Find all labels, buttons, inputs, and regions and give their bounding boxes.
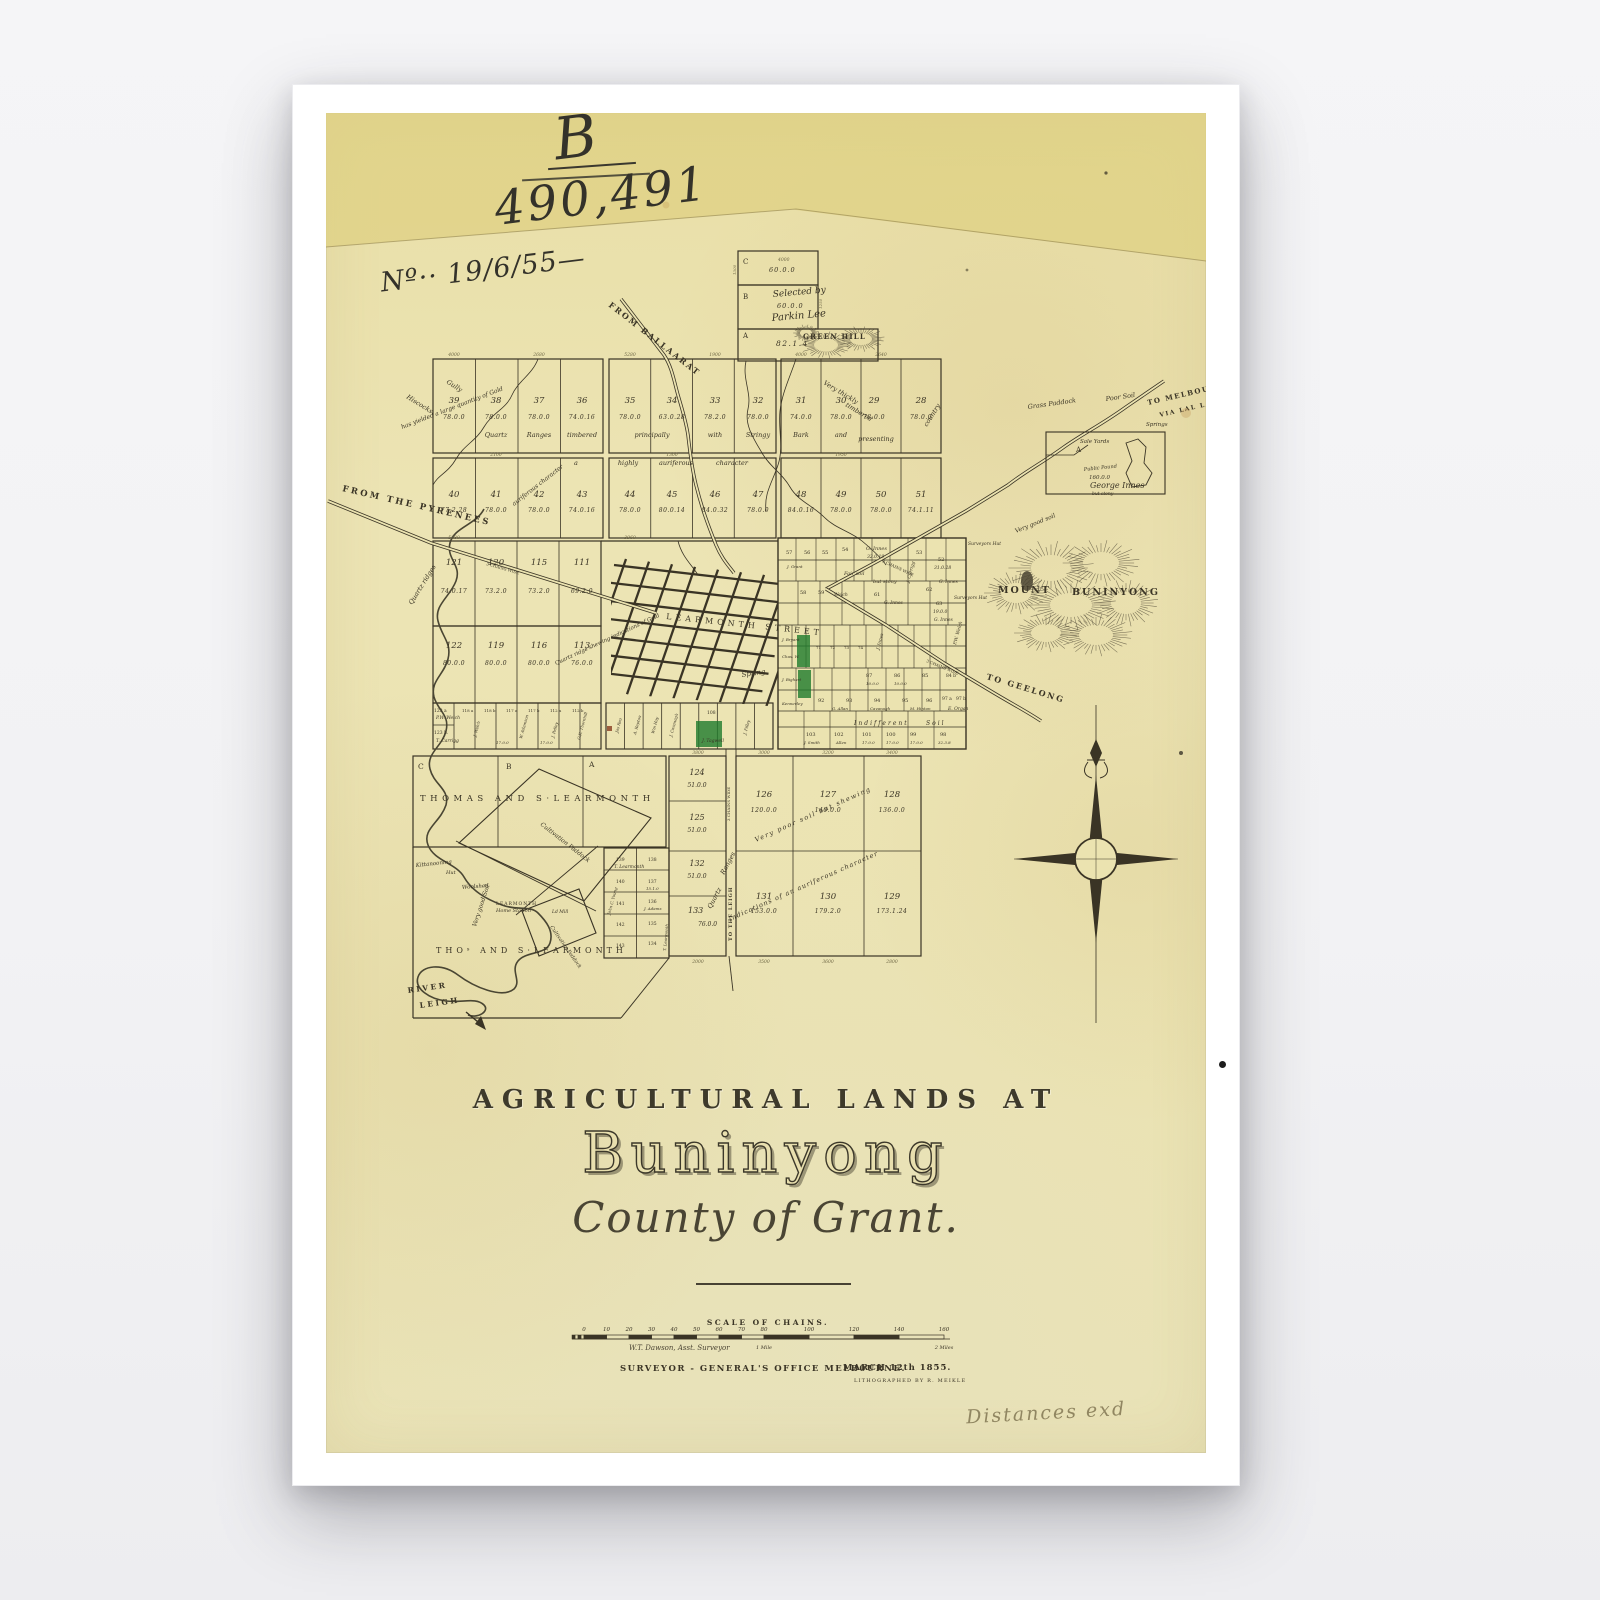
hill-hachure	[1030, 549, 1039, 557]
hill-hachure	[1036, 641, 1040, 645]
hill-hachure	[1138, 609, 1149, 615]
hill-hachure	[1099, 645, 1102, 656]
hill-hachure	[1021, 603, 1024, 610]
owner-name: T. Learmonth	[614, 864, 644, 870]
dim-number: 4000	[777, 257, 790, 263]
scalebar-tick: 120	[849, 1327, 860, 1333]
parcel-number: 41	[490, 490, 502, 500]
hill-hachure	[1079, 572, 1090, 581]
hill-hachure	[858, 345, 860, 350]
dim-number: 3000	[758, 750, 770, 756]
map-label: 137	[648, 879, 657, 885]
map-label: 118 a	[462, 708, 474, 713]
green-lot-2	[798, 670, 811, 698]
parcel-number: 28	[915, 396, 927, 406]
map-label: 31.0.28	[934, 565, 951, 571]
scalebar-tail	[572, 1335, 575, 1339]
compass-east-spike	[1112, 853, 1178, 866]
hill-hachure	[871, 341, 876, 342]
parcel-number: 129	[884, 892, 901, 902]
soil-note: Very good soil	[1014, 512, 1056, 535]
scalebar-segment	[697, 1335, 720, 1339]
parcel-number: 48	[795, 490, 807, 500]
owner-name: Welch	[834, 592, 848, 598]
cross-street	[719, 575, 764, 705]
map-line	[621, 958, 669, 1018]
hill-hachure	[1074, 560, 1084, 561]
surveyors-hut: Surveyors Hut	[968, 541, 1001, 547]
map-label: 135	[648, 921, 657, 927]
scalebar-segment	[652, 1335, 675, 1339]
hill-hachure	[1057, 580, 1065, 593]
scalebar-tick: 140	[894, 1327, 905, 1333]
creek-4	[678, 541, 698, 575]
owner-name: J. Grant	[786, 564, 803, 569]
parcel-area: 80.0.0	[443, 660, 465, 667]
hill-hachure	[1006, 602, 1010, 607]
map-label: 98	[940, 732, 946, 738]
map-label: 103	[806, 732, 816, 738]
owner-name: J. Tagwell	[701, 738, 724, 744]
map-label: 112 a	[550, 708, 562, 713]
map-label: 117 a	[506, 708, 518, 713]
soil-note: with	[708, 431, 722, 439]
hill-hachure	[1067, 637, 1080, 638]
soil-note: auriferous	[659, 459, 694, 467]
mount-label: MOUNT	[998, 585, 1051, 596]
hill-hachure	[1084, 644, 1088, 649]
hill-hachure	[1012, 577, 1013, 583]
dim-number: 3800	[692, 750, 704, 756]
hill-hachure	[1020, 634, 1031, 635]
hill-hachure	[1016, 570, 1031, 572]
parcel-number: 121	[446, 558, 462, 568]
soil-note: Quartz	[485, 431, 508, 439]
public-pound: Public Pound	[1083, 464, 1118, 474]
hill-hachure	[1038, 541, 1045, 555]
hill-hachure	[1118, 566, 1127, 568]
cultivation-paddock: Cultivation Paddock	[539, 821, 592, 864]
dim-number: 5280	[624, 352, 636, 358]
parcel-number: 130	[820, 892, 837, 902]
hill-hachure	[1020, 565, 1031, 566]
compass-fleur	[1090, 739, 1102, 767]
map-label: 138	[648, 857, 657, 863]
dim-number: 3960	[624, 535, 636, 541]
kittanooning-hut: Kittanooning	[415, 859, 453, 869]
compass-north-spike	[1090, 775, 1103, 841]
parcel-area: 74.0.16	[569, 507, 595, 514]
parcel-number: 50	[876, 490, 887, 500]
hill-hachure	[1107, 547, 1110, 553]
soil-note: Quartz	[706, 886, 724, 910]
hill-hachure	[1060, 636, 1067, 637]
owner-name: Kennerley	[781, 701, 803, 706]
hill-hachure	[1067, 576, 1082, 583]
parcel-area: 74.0.16	[569, 414, 595, 421]
dim-number: 2640	[874, 352, 887, 358]
hill-hachure	[1028, 640, 1037, 648]
dim-number: 3200	[822, 750, 834, 756]
map-label: 32.0.19	[867, 554, 884, 560]
dim-number: 2000	[691, 959, 704, 965]
map-label: 51.0.0	[687, 827, 706, 834]
hill-hachure	[1023, 631, 1031, 632]
scalebar-tick: 50	[693, 1327, 700, 1333]
map-label: 133	[688, 906, 703, 915]
mount-label: BUNINYONG	[1072, 587, 1160, 598]
map-label: 10.0.0	[894, 681, 907, 686]
parcel-number: 32	[753, 396, 764, 406]
owner-name: G. Innes	[866, 546, 887, 552]
hill-hachure	[1104, 574, 1107, 586]
hill-hachure	[1113, 632, 1132, 634]
hill-hachure	[1140, 606, 1147, 608]
parcel-number: 127	[820, 790, 837, 800]
parcel-area: 74.0.0	[790, 414, 812, 421]
dim-number: 1300	[732, 264, 737, 275]
dim-number: 3500	[758, 959, 770, 965]
parcel-area: 179.2.0	[815, 908, 841, 915]
map-label: 17.0.0	[886, 740, 899, 745]
scalebar-segment	[607, 1335, 630, 1339]
hill-hachure	[864, 345, 866, 349]
owner-name: G. Innes	[884, 600, 904, 606]
hill-hachure	[871, 342, 881, 345]
hill-hachure	[810, 350, 817, 354]
map-label: 101	[862, 732, 872, 738]
hill-hachure	[1085, 645, 1090, 655]
mill: Ld Mill	[551, 909, 569, 915]
hill-hachure	[1104, 617, 1112, 626]
red-lot	[607, 726, 612, 731]
map-label: 76.0.0	[698, 921, 717, 928]
parcel-number: 45	[666, 490, 678, 500]
soil-note: Ranges	[526, 431, 552, 439]
lagoon	[1126, 439, 1152, 487]
hill-hachure	[1074, 642, 1084, 648]
owner-name: J. Adams	[643, 906, 662, 911]
hill-hachure	[1119, 559, 1140, 561]
hill-hachure	[1116, 613, 1120, 618]
map-label: 132	[689, 859, 704, 868]
owner-name: J. Filley	[742, 719, 751, 737]
hill-hachure	[1069, 558, 1082, 562]
ink-dot	[1219, 1061, 1226, 1068]
owner-name: G. Innes	[939, 579, 959, 585]
hill-hachure	[1022, 636, 1032, 638]
river-leigh	[417, 509, 551, 1016]
dim-number: 2100	[489, 452, 502, 458]
map-label: 86	[894, 673, 900, 679]
map-label: 108	[707, 710, 716, 716]
map-label: 123 a	[434, 708, 447, 714]
owner-name: THOˢ AND S·LEARMONTH	[436, 946, 627, 955]
imprint-date: MARCH 12th 1855.	[843, 1363, 951, 1373]
owner-name: T. Learmonth	[662, 923, 669, 951]
hill-hachure	[1031, 610, 1053, 616]
hill-hachure	[1046, 547, 1048, 555]
owner-name: T. Carrigg	[436, 738, 459, 744]
parcel-area: 78.0.0	[443, 414, 465, 421]
scale-title: SCALE OF CHAINS.	[707, 1318, 829, 1327]
fold-edge	[326, 209, 1206, 261]
hill-hachure	[1066, 568, 1085, 574]
river-label: LEIGH	[419, 995, 460, 1010]
map-label: 19.0.0	[933, 609, 947, 615]
scalebar-tick: 40	[670, 1327, 678, 1333]
map-label: 100	[886, 732, 896, 738]
hill-hachure	[1078, 620, 1086, 627]
hill-hachure	[1096, 545, 1098, 552]
hill-hachure	[1104, 540, 1107, 552]
hill-hachure	[867, 330, 873, 335]
scalebar-tick: 0	[582, 1327, 586, 1333]
selected-by: Selected by	[772, 285, 827, 300]
road-from-pyrenees	[328, 501, 656, 613]
map-label: 71	[816, 645, 821, 650]
map-label: 136	[648, 899, 657, 905]
hill-hachure	[1012, 603, 1014, 612]
hill-hachure	[1122, 614, 1124, 624]
hill-hachure	[1141, 605, 1157, 607]
owner-name: A. Repton	[632, 714, 642, 736]
parcel-number: 119	[488, 641, 505, 651]
cross-street	[673, 570, 718, 700]
map-label: 85	[922, 673, 928, 679]
parcel-area: 80.0.0	[528, 660, 550, 667]
owner-name: Wm Hay	[650, 716, 660, 735]
map-label: 54	[842, 547, 848, 553]
hill-hachure	[1066, 586, 1068, 593]
parcel-number: 115	[531, 558, 547, 568]
scalebar-tail	[581, 1335, 584, 1339]
hill-hachure	[1141, 599, 1158, 601]
map-label: 142	[616, 922, 625, 928]
road-label-geelong: TO GEELONG	[985, 671, 1066, 704]
parcel-number: 116	[531, 641, 548, 651]
parcel-label: A	[742, 332, 749, 340]
hill-hachure	[1026, 639, 1035, 644]
ink-spot	[966, 269, 969, 272]
hill-hachure	[1112, 546, 1122, 554]
owner-name: W. Adamson	[518, 714, 529, 739]
scalebar-tick: 10	[603, 1327, 610, 1333]
hill-hachure	[1060, 545, 1069, 557]
hill-hachure	[1063, 548, 1074, 558]
map-paper: 3978.0.03878.0.03778.0.03674.0.163578.0.…	[326, 113, 1206, 1453]
home-station: LEARMONTH	[496, 901, 537, 907]
parcel-area: 63.0.28	[659, 414, 685, 421]
hill-hachure	[1111, 640, 1127, 645]
soil-note: highly	[618, 459, 639, 467]
hill-hachure	[1110, 641, 1123, 646]
hill-hachure	[1069, 638, 1080, 640]
hill-hachure	[1113, 637, 1131, 639]
map-label: 97 a	[942, 696, 952, 702]
owner-name: THOMAS AND S·LEARMONTH	[420, 794, 655, 804]
hill-hachure	[1139, 608, 1153, 613]
soil-note: indications of an auriferous character	[728, 849, 880, 922]
scalebar-segment	[742, 1335, 765, 1339]
map-label: 117 b	[528, 708, 540, 713]
hill-hachure	[1018, 572, 1021, 583]
map-label: 63	[936, 601, 942, 607]
hill-hachure	[1091, 599, 1104, 601]
scalebar-tick: 100	[804, 1327, 815, 1333]
hill-hachure	[987, 598, 1002, 603]
dim-number: 4000	[447, 352, 460, 358]
hill-hachure	[1089, 540, 1095, 552]
soil-note: Fair soil	[843, 571, 865, 577]
parcel-area: 60.0.0	[769, 266, 796, 274]
ink-spot	[1179, 751, 1183, 755]
owner-name: J. Bighart	[781, 677, 801, 682]
owner-name: J. Cavanagh	[668, 712, 679, 738]
hill-hachure	[1006, 572, 1011, 583]
owner-name: G. Allan	[832, 706, 848, 711]
hill-hachure	[1039, 602, 1050, 603]
parcel-area: 78.0.0	[485, 507, 507, 514]
scalebar-tick: 80	[761, 1327, 768, 1333]
spring-label: Spring	[741, 668, 766, 679]
owner-name: Allen	[835, 740, 847, 745]
scalebar-tick: 160	[939, 1327, 950, 1333]
map-label: 15.1.0	[646, 886, 659, 891]
map-label: 139	[616, 857, 625, 863]
dim-number: 1300	[666, 452, 678, 458]
map-poster: 3978.0.03878.0.03778.0.03674.0.163578.0.…	[292, 84, 1240, 1486]
creek-2	[745, 361, 886, 565]
hill-hachure	[1063, 640, 1081, 645]
hill-hachure	[1103, 600, 1111, 601]
dim-number: 1250	[818, 298, 823, 309]
hill-hachure	[1072, 566, 1083, 568]
hill-hachure	[1000, 578, 1007, 585]
soil-note: but stony	[873, 579, 897, 585]
hill-hachure	[1090, 573, 1096, 584]
map-label: 17.0.0	[496, 740, 509, 745]
hill-hachure	[1059, 637, 1073, 641]
soil-note: a	[574, 459, 578, 467]
parcel-number: 51	[916, 490, 927, 500]
map-label: 72	[830, 645, 836, 650]
hill-hachure	[1091, 609, 1101, 611]
map-label: 99	[910, 732, 916, 738]
soil-note: Ranges	[718, 850, 737, 877]
map-label: 125	[689, 813, 704, 822]
parcel-number: 38	[491, 396, 502, 406]
hill-hachure	[828, 351, 830, 358]
map-label: 58	[800, 590, 806, 596]
hill-hachure	[1106, 619, 1115, 627]
dim-number: 3400	[886, 750, 898, 756]
parcel-number: 44	[624, 490, 636, 500]
owner-name: J. Smith	[803, 740, 820, 745]
owner-name: Chas. W.	[782, 654, 800, 659]
hill-hachure	[1070, 565, 1083, 566]
map-label: 140	[616, 879, 625, 885]
parcel-number: 122	[446, 641, 462, 651]
hill-hachure	[1097, 608, 1112, 614]
hill-hachure	[1091, 645, 1093, 654]
parcel-label: A	[1075, 446, 1082, 454]
hill-hachure	[998, 601, 1007, 610]
hill-hachure	[1057, 616, 1062, 622]
soil-note: Indifferent	[853, 720, 909, 727]
parcel-area: 78.0.0	[747, 414, 769, 421]
parcel-area: 84.0.32	[702, 507, 728, 514]
owner-name: P.W. Welch	[435, 715, 460, 721]
hill-hachure	[1045, 615, 1058, 625]
map-label: 94	[874, 698, 880, 704]
soil-note: character	[716, 459, 749, 467]
parcel-number: 37	[534, 396, 545, 406]
cross-street	[696, 572, 741, 702]
dim-number: 2680	[532, 352, 545, 358]
map-label: 73	[844, 645, 850, 650]
hill-hachure	[1070, 561, 1083, 564]
hill-hachure	[1055, 619, 1063, 626]
hill-hachure	[1101, 645, 1105, 652]
hill-hachure	[838, 346, 851, 347]
map-label: 87	[866, 673, 872, 679]
compass-west-spike	[1014, 853, 1080, 866]
map-label: 59	[818, 590, 824, 596]
dim-number: 5280	[448, 535, 460, 541]
hill-hachure	[1089, 573, 1093, 578]
hill-hachure	[1117, 568, 1133, 573]
map-line	[729, 956, 733, 991]
dim-number: 3600	[822, 959, 834, 965]
cross-street	[650, 567, 695, 697]
parcel-number: 128	[884, 790, 901, 800]
hill-hachure	[1106, 611, 1115, 618]
parcel-area: 78.2.0	[704, 414, 726, 421]
hill-hachure	[807, 325, 808, 329]
hill-hachure	[1112, 638, 1120, 640]
compass-south-spike	[1090, 877, 1103, 943]
scalebar-tick: 20	[625, 1327, 633, 1333]
map-label: 124	[689, 768, 704, 777]
hill-hachure	[1036, 615, 1041, 625]
hill-hachure	[1048, 614, 1051, 624]
parcel-area: 80.0.14	[659, 507, 685, 514]
dim-number: 1900	[709, 352, 721, 358]
parcel-label: B	[743, 293, 748, 301]
parcel-area: 78.0.0	[747, 507, 769, 514]
parcel-number: 29	[868, 396, 880, 406]
hill-hachure	[1075, 643, 1086, 652]
owner-name: M. Hinton	[909, 706, 931, 711]
hill-hachure	[1131, 613, 1134, 620]
map-label: 134	[648, 941, 657, 947]
hill-hachure	[1048, 642, 1051, 652]
map-label: 52	[938, 557, 944, 563]
hill-hachure	[1028, 599, 1039, 604]
map-label: 112 b	[572, 708, 584, 713]
scalebar-tick: 70	[738, 1327, 745, 1333]
scalebar-tick: 30	[648, 1327, 655, 1333]
scalebar-tail	[578, 1335, 581, 1339]
parcel-area: 73.2.0	[528, 588, 550, 595]
map-label: 118 b	[484, 708, 496, 713]
hill-hachure	[1109, 543, 1117, 553]
sale-yards: Sale Yards	[1080, 439, 1109, 445]
hill-hachure	[1029, 598, 1043, 603]
imprint-lithographer: LITHOGRAPHED BY R. MEIKLE	[854, 1378, 966, 1384]
parcel-number: 40	[448, 490, 460, 500]
